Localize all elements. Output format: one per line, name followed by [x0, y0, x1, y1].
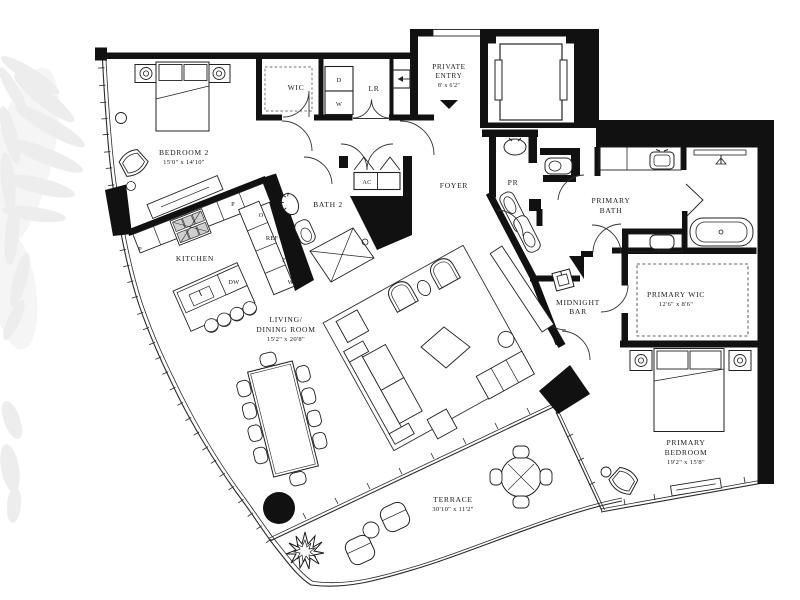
svg-text:P: P: [231, 201, 235, 208]
svg-text:BEDROOM 2: BEDROOM 2: [159, 148, 209, 157]
svg-text:30'10" x 11'2": 30'10" x 11'2": [432, 506, 473, 513]
svg-text:WIC: WIC: [288, 83, 305, 92]
svg-text:PR: PR: [508, 178, 519, 187]
svg-text:PRIVATE: PRIVATE: [432, 63, 466, 71]
svg-text:REF: REF: [266, 235, 279, 242]
svg-text:BAR: BAR: [569, 307, 587, 316]
svg-text:12'6" x 8'6": 12'6" x 8'6": [659, 301, 693, 308]
svg-text:W: W: [336, 101, 343, 108]
svg-text:TERRACE: TERRACE: [433, 495, 473, 504]
svg-text:15'0" x 14'10": 15'0" x 14'10": [163, 159, 205, 166]
svg-text:ENTRY: ENTRY: [435, 72, 462, 80]
svg-text:8' x 6'2": 8' x 6'2": [438, 83, 461, 89]
svg-text:AC: AC: [362, 179, 371, 186]
svg-text:FOYER: FOYER: [440, 181, 469, 190]
svg-text:O: O: [259, 212, 264, 219]
svg-text:KITCHEN: KITCHEN: [176, 254, 214, 263]
svg-text:PRIMARY: PRIMARY: [591, 196, 630, 205]
svg-text:19'2" x 15'8": 19'2" x 15'8": [667, 459, 705, 466]
svg-text:P: P: [138, 246, 142, 253]
svg-text:F: F: [282, 257, 286, 264]
svg-text:15'2" x 20'8": 15'2" x 20'8": [267, 336, 305, 343]
svg-text:WC: WC: [288, 279, 299, 286]
svg-text:PRIMARY WIC: PRIMARY WIC: [647, 290, 705, 299]
svg-text:DINING ROOM: DINING ROOM: [256, 325, 315, 334]
svg-text:DW: DW: [228, 279, 240, 286]
svg-text:BATH: BATH: [600, 206, 623, 215]
svg-text:PRIMARY: PRIMARY: [666, 438, 705, 447]
svg-text:LIVING/: LIVING/: [269, 315, 302, 324]
svg-text:LR: LR: [368, 84, 379, 93]
svg-text:BEDROOM: BEDROOM: [665, 448, 708, 457]
svg-text:BATH 2: BATH 2: [313, 200, 343, 209]
svg-text:MIDNIGHT: MIDNIGHT: [556, 298, 600, 307]
svg-text:D: D: [337, 77, 342, 84]
